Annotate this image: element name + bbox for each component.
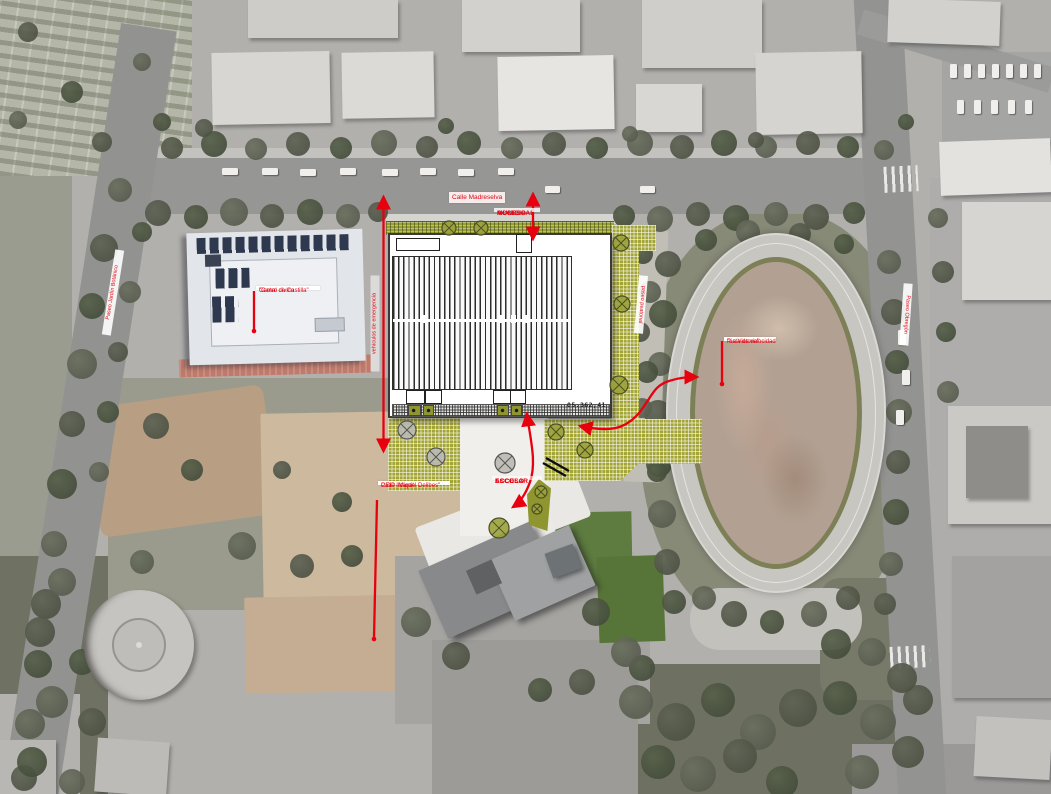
car (957, 100, 964, 114)
car (262, 168, 278, 175)
car (902, 370, 910, 385)
room-divider (510, 391, 512, 403)
site-plan-aerial: 05.362,41 Calle Madreselva (0, 0, 1051, 794)
planting-area-east (612, 251, 639, 419)
round-structure (84, 590, 194, 700)
label-line: "La Victoria" (727, 339, 760, 346)
car (300, 169, 316, 176)
label-line: CEIP "Miguel Delibes" (381, 483, 440, 490)
building-parcel (388, 233, 612, 418)
roof-skylight (523, 315, 528, 323)
planter-box (408, 405, 421, 416)
access-municipal-label: ACCESO MUNICIPAL (494, 208, 540, 212)
patio-label: Patio infantil CEIP "Miguel Delibes" (378, 481, 450, 485)
label-line: MUNICIPAL (497, 210, 534, 217)
car (458, 169, 474, 176)
planting-area-southwest (388, 417, 460, 491)
car (974, 100, 981, 114)
rooftop-unit (205, 254, 221, 266)
car (640, 186, 655, 193)
car (978, 64, 985, 78)
planter-box (497, 405, 509, 416)
planter-box (423, 405, 434, 416)
civic-center-building (186, 229, 365, 366)
label-line: "Canal de Castilla" (259, 288, 309, 295)
emergency-route-label: vehículos de emergencia (371, 276, 380, 372)
roof-skylight (511, 315, 516, 323)
room-divider (424, 391, 426, 403)
municipal-entrance-box (516, 234, 532, 253)
civic-center-label: Centro cívico "Canal de Castilla" (256, 286, 320, 290)
roof-skylight (499, 315, 504, 323)
access-school-label: ACCESO ESCOLAR (492, 476, 542, 480)
car (545, 186, 560, 193)
velodrome-label: Pista de velocidad "La Victoria" (724, 337, 776, 341)
velodrome-track (666, 233, 886, 593)
solar-panel-patch (215, 268, 250, 289)
solar-panel-row (196, 234, 348, 254)
planting-area-east (612, 225, 656, 251)
roof-skylight (421, 315, 426, 323)
car (950, 64, 957, 78)
car (222, 168, 238, 175)
car (382, 169, 398, 176)
car (1025, 100, 1032, 114)
annex-rooms (493, 390, 526, 404)
annex-rooms (406, 390, 442, 404)
round-structure-center (136, 642, 142, 648)
entrance-canopy-outline (396, 238, 440, 251)
solar-panel-patch (212, 296, 239, 323)
car (340, 168, 356, 175)
car (991, 100, 998, 114)
planter-box (511, 405, 522, 416)
car (1006, 64, 1013, 78)
level-marker: 05.362,41 (567, 401, 606, 409)
car (896, 410, 904, 425)
rooftop-unit (315, 317, 345, 332)
car (498, 168, 514, 175)
car (992, 64, 999, 78)
velodrome-infield (690, 257, 862, 569)
car (1020, 64, 1027, 78)
roof-seam (393, 319, 571, 322)
main-roof-hatched (392, 256, 572, 390)
car (1034, 64, 1041, 78)
car (1008, 100, 1015, 114)
label-line: ESCOLAR (495, 478, 528, 485)
car (420, 168, 436, 175)
street-label-calle-madreselva: Calle Madreselva (449, 192, 505, 203)
car (964, 64, 971, 78)
